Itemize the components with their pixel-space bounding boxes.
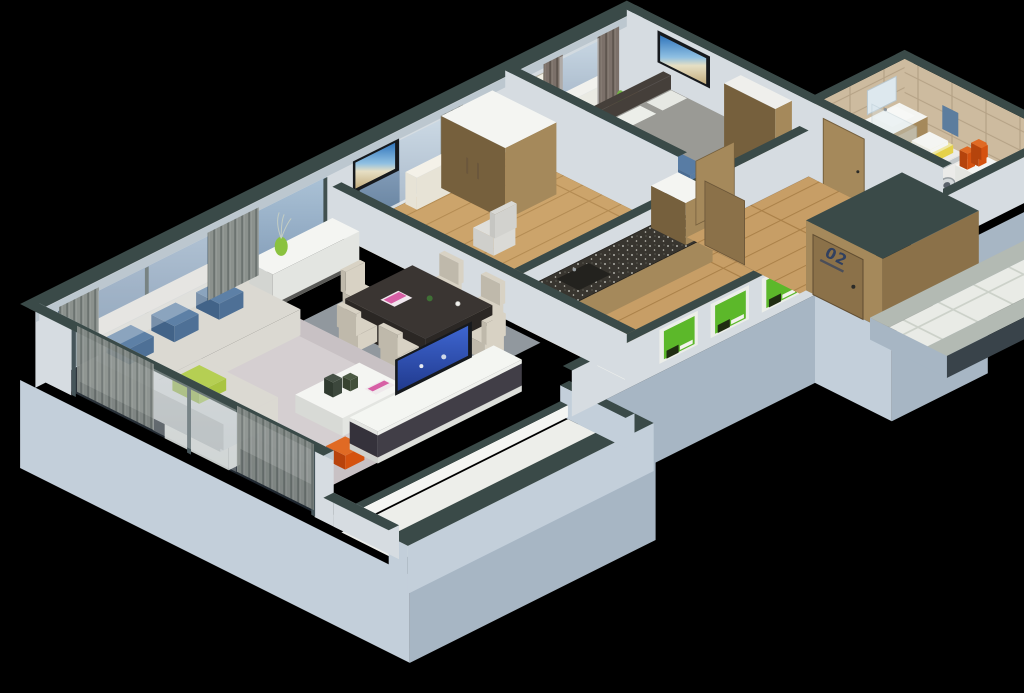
apartment-3d-floorplan: 02 xyxy=(0,0,1024,693)
table-plant xyxy=(427,295,433,301)
door-handle xyxy=(851,285,855,289)
floorplan-canvas: 02 xyxy=(0,0,1024,693)
coffee-cup xyxy=(456,302,460,306)
curtain xyxy=(597,26,619,105)
green-vase xyxy=(275,237,288,256)
